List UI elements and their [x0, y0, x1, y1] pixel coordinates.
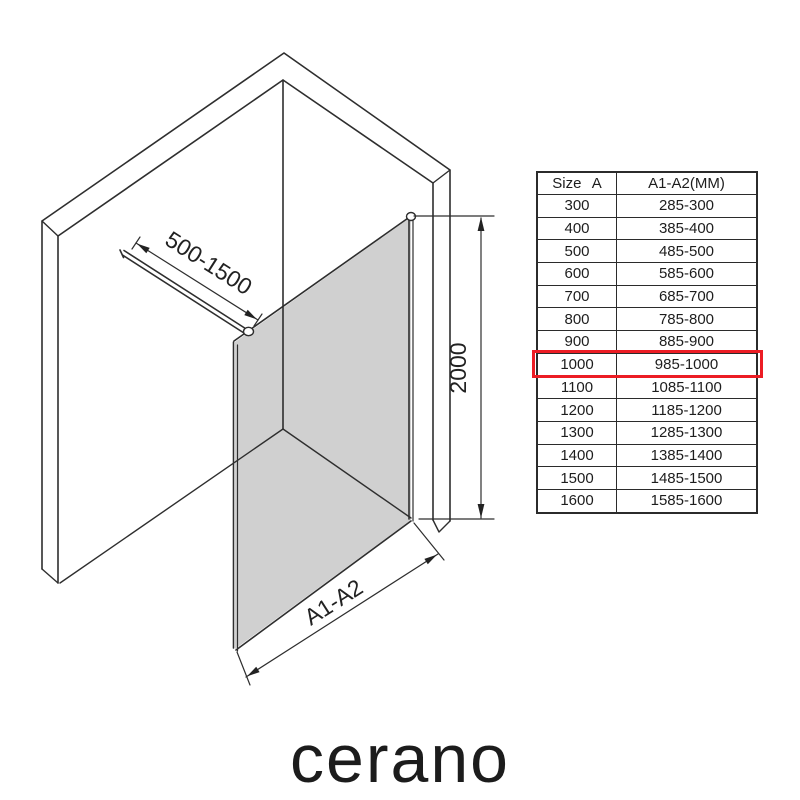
table-row: 16001585-1600	[538, 490, 756, 512]
table-row: 13001285-1300	[538, 422, 756, 445]
size-table: Size A A1-A2(MM) 300285-300 400385-400 5…	[536, 171, 758, 514]
table-row: 400385-400	[538, 218, 756, 241]
bar-glass-connector	[244, 327, 254, 335]
table-row: 500485-500	[538, 240, 756, 263]
table-row: 12001185-1200	[538, 399, 756, 422]
brand-logo: cerano	[0, 718, 800, 800]
table-row: 800785-800	[538, 308, 756, 331]
table-row: 11001085-1100	[538, 377, 756, 400]
height-dimension: 2000	[414, 216, 494, 519]
bar-wall-mount	[120, 250, 124, 258]
product-spec-sheet: 500-1500 2000 A1-A2 Size A A1-A2(MM) 300…	[0, 0, 800, 800]
table-row-highlighted: 1000985-1000	[538, 354, 756, 377]
table-row: 300285-300	[538, 195, 756, 218]
table-row: 14001385-1400	[538, 445, 756, 468]
header-range: A1-A2(MM)	[617, 173, 756, 194]
size-table-header: Size A A1-A2(MM)	[538, 173, 756, 195]
table-row: 900885-900	[538, 331, 756, 354]
table-row: 700685-700	[538, 286, 756, 309]
height-dimension-label: 2000	[445, 342, 471, 393]
table-row: 15001485-1500	[538, 467, 756, 490]
glass-panel	[235, 217, 411, 649]
header-size: Size A	[538, 173, 617, 194]
bar-dimension: 500-1500	[132, 226, 262, 326]
table-row: 600585-600	[538, 263, 756, 286]
